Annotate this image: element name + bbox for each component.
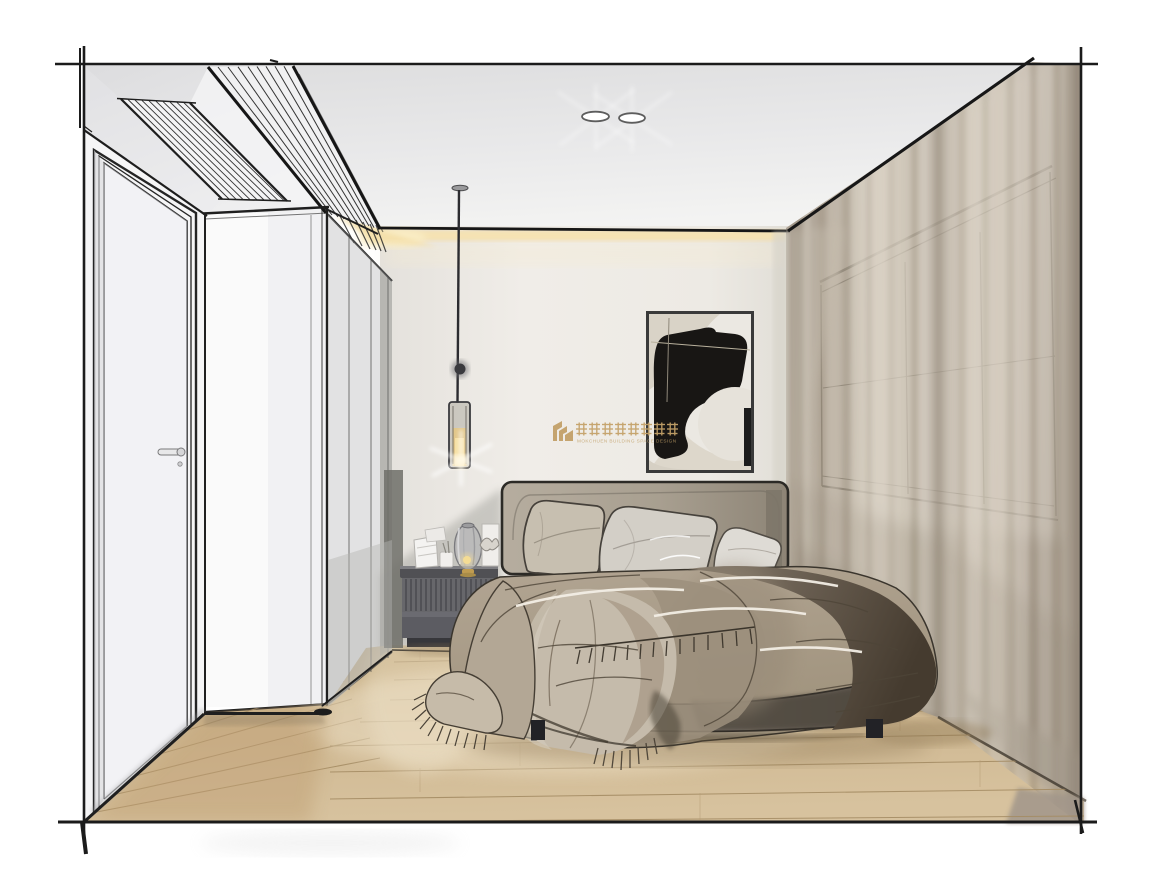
svg-text:MOKCHUEN BUILDING SPACE DESIGN: MOKCHUEN BUILDING SPACE DESIGN xyxy=(577,439,677,444)
